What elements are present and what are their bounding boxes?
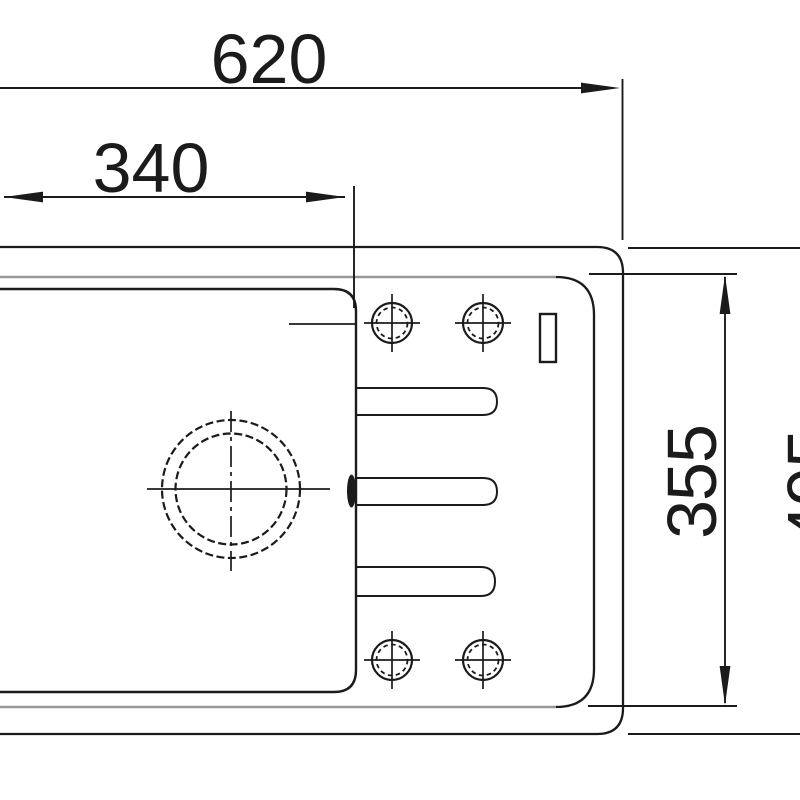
tap-hole: [455, 294, 511, 352]
fixing-rectangle: [540, 314, 556, 362]
bowl-outline: [0, 289, 356, 692]
drainer-groove: [356, 567, 495, 596]
sink-body: [0, 247, 623, 734]
drainer-groove: [356, 388, 497, 415]
drainer-groove: [356, 478, 497, 505]
dimension-label-620: 620: [211, 20, 328, 98]
dimension-bowl-width: 340: [4, 129, 354, 308]
dimension-inner-depth: 355: [588, 274, 737, 706]
arrowhead-down-icon: [720, 666, 731, 705]
dimension-label-355: 355: [653, 425, 731, 539]
outer-outline: [0, 247, 623, 734]
inner-rim-corner: [556, 277, 594, 707]
technical-drawing-canvas: 620 340 355 495: [0, 0, 800, 800]
tap-hole: [364, 631, 420, 689]
tap-hole: [364, 294, 420, 352]
overflow-slot: [347, 475, 356, 508]
arrowhead-right-icon: [581, 83, 620, 94]
sink-dimension-diagram: 620 340 355 495: [0, 0, 800, 800]
arrowhead-right-icon: [306, 192, 345, 203]
arrowhead-left-icon: [4, 192, 43, 203]
dimension-label-340: 340: [93, 129, 210, 207]
drain-hole: [147, 411, 330, 571]
tap-hole: [455, 631, 511, 689]
dimension-label-partial: 495: [773, 430, 800, 544]
arrowhead-up-icon: [720, 275, 731, 314]
tap-holes: [364, 294, 511, 689]
drainer-grooves: [356, 388, 497, 596]
